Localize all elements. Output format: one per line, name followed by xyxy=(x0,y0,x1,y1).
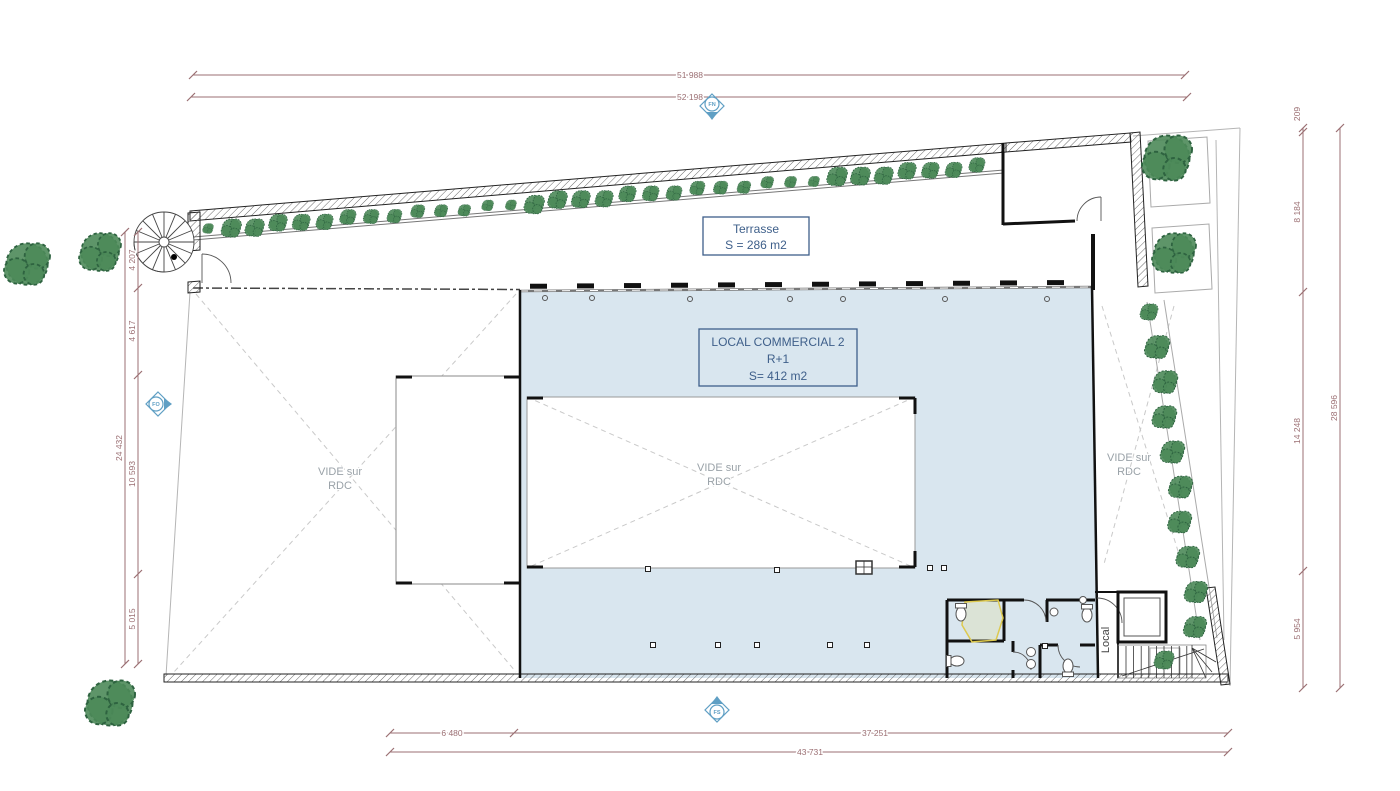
dim-bottom-seg1: 6 480 xyxy=(441,728,463,738)
left-white-room xyxy=(396,376,520,584)
dim-right-seg2: 8 184 xyxy=(1292,201,1302,223)
dim-bottom-seg2: 37 251 xyxy=(862,728,888,738)
local-commercial-title: LOCAL COMMERCIAL 2 xyxy=(711,335,844,349)
highlight-shape xyxy=(962,600,1003,642)
local-room-label: Local xyxy=(1100,627,1112,653)
svg-text:VIDE sur: VIDE sur xyxy=(318,466,362,478)
floor-plan-page: 51 988 52 198 6 480 37 251 43 731 24 432… xyxy=(0,0,1400,791)
vide-label-right: VIDE sur RDC xyxy=(1107,452,1151,478)
dim-top-2: 52 198 xyxy=(677,92,703,102)
dimension-left xyxy=(121,228,142,668)
dim-left-total: 24 432 xyxy=(114,435,124,461)
svg-text:VIDE sur: VIDE sur xyxy=(1107,452,1151,464)
svg-text:RDC: RDC xyxy=(707,476,731,488)
door-terrace-left xyxy=(202,254,231,283)
dim-bottom-total: 43 731 xyxy=(797,747,823,757)
dim-left-seg1: 4 207 xyxy=(127,249,137,271)
vide-label-left: VIDE sur RDC xyxy=(318,466,362,492)
terrace-area: S = 286 m2 xyxy=(725,238,787,252)
svg-text:FS: FS xyxy=(713,710,720,716)
svg-text:RDC: RDC xyxy=(328,480,352,492)
svg-text:RDC: RDC xyxy=(1117,466,1141,478)
door-top-right xyxy=(1077,197,1101,221)
dim-right-total: 28 596 xyxy=(1329,395,1339,421)
dim-left-seg2: 4 617 xyxy=(127,320,137,342)
svg-text:FN: FN xyxy=(708,102,715,108)
facade-marker-south: FS xyxy=(705,696,729,722)
local-commercial-level: R+1 xyxy=(767,352,790,366)
dim-left-seg3: 10 593 xyxy=(127,461,137,487)
facade-marker-north: FN xyxy=(700,94,724,120)
dim-left-seg4: 5 015 xyxy=(127,608,137,630)
svg-text:VIDE sur: VIDE sur xyxy=(697,462,741,474)
dim-top-1: 51 988 xyxy=(677,70,703,80)
dim-right-seg4: 5 954 xyxy=(1292,618,1302,640)
terrace-edge xyxy=(193,288,520,290)
terrace-label-box: Terrasse S = 286 m2 xyxy=(703,217,809,255)
floor-plan-canvas: 51 988 52 198 6 480 37 251 43 731 24 432… xyxy=(0,0,1400,791)
facade-marker-west: FO xyxy=(146,392,172,416)
dim-right-seg3: 14 248 xyxy=(1292,418,1302,444)
svg-text:FO: FO xyxy=(152,402,160,408)
local-commercial-area: S= 412 m2 xyxy=(749,369,808,383)
spiral-staircase xyxy=(134,212,194,272)
dim-right-seg1: 209 xyxy=(1292,107,1302,121)
terrace-title: Terrasse xyxy=(733,222,779,236)
elevator xyxy=(1118,592,1166,642)
